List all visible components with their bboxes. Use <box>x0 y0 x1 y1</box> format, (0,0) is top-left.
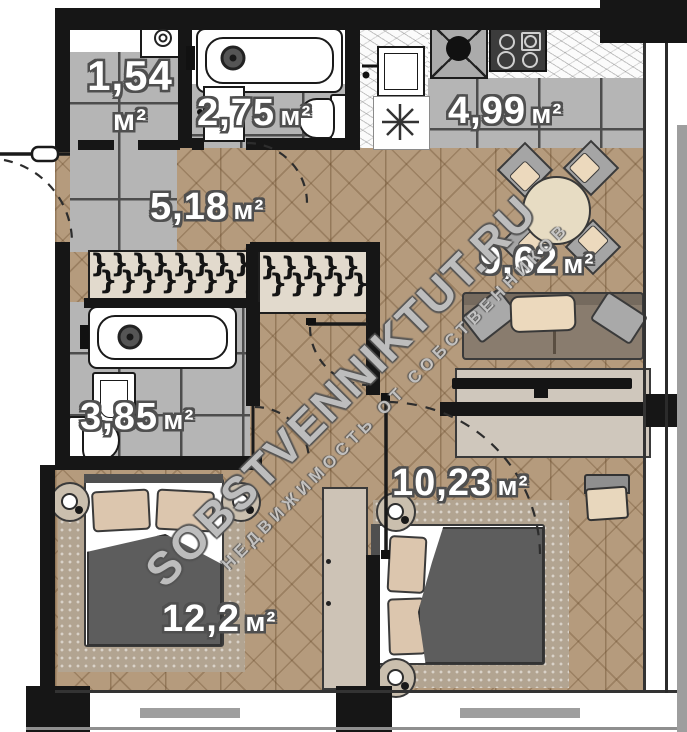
room-label-kitchen: 4,99 м² <box>448 90 562 133</box>
window-sill <box>460 708 580 718</box>
handle-icon <box>326 601 331 606</box>
room-label-bathroom-left: 3,85 м² <box>80 396 194 439</box>
railing-right <box>677 125 687 732</box>
blanket-right <box>418 527 544 664</box>
burner-icon <box>497 51 515 69</box>
nightstand-lamp <box>221 482 261 522</box>
appliance-space <box>373 96 430 150</box>
window-right-glass <box>665 43 668 693</box>
wardrobe-corridor: }}}}} }}}}} <box>258 250 368 314</box>
wall <box>84 298 250 308</box>
wall <box>366 242 380 395</box>
tv <box>452 378 632 389</box>
room-label-storage: 1,54 м² <box>78 52 182 138</box>
wall <box>366 555 380 690</box>
bathtub-left <box>88 306 237 369</box>
handle-icon <box>326 559 331 564</box>
balcony-edge <box>26 727 687 730</box>
window-bottom <box>55 690 687 693</box>
room-label-hallway: 5,18 м² <box>150 186 264 229</box>
floor-plan: }}}}}}}} }}}}}}}} }}}}} }}}}} <box>0 0 687 732</box>
burner-icon <box>522 52 538 68</box>
wall <box>138 140 180 150</box>
wall <box>192 138 204 150</box>
pillow <box>155 489 215 533</box>
pillow <box>91 489 151 533</box>
stove <box>489 26 547 72</box>
wall <box>55 8 600 30</box>
wall <box>246 302 260 406</box>
room-label-living-room: 9,62 м² <box>480 240 594 283</box>
wall <box>246 138 345 150</box>
door-panel <box>384 53 418 90</box>
hanger-icons: }}}}}}}} }}}}}}}} <box>90 252 248 293</box>
kitchen-sink-icon <box>446 36 471 61</box>
room-label-bathroom-top: 2,75 м² <box>197 92 311 135</box>
dining-table <box>522 176 591 245</box>
room-label-bedroom-left: 12,2 м² <box>162 598 276 641</box>
wall <box>40 465 55 690</box>
bathtub-top <box>196 28 343 93</box>
pillow <box>387 535 428 594</box>
sofa-pillow-beige <box>509 294 576 333</box>
burner-icon <box>499 34 515 50</box>
wall <box>78 140 114 150</box>
tv-stand <box>534 389 548 398</box>
wall <box>345 8 360 150</box>
room-label-bedroom-right: 10,23 м² <box>392 462 529 505</box>
burner-icon <box>524 35 537 48</box>
bed-left-headboard <box>84 474 223 483</box>
wall <box>600 0 687 43</box>
wardrobe-bedroom-left <box>322 487 368 690</box>
wall <box>55 8 70 152</box>
kitchen-door-leaf <box>377 46 425 97</box>
wall <box>250 242 380 252</box>
window-sill <box>140 708 240 718</box>
hanger-icons: }}}}} }}}}} <box>260 255 366 296</box>
wall <box>55 242 70 465</box>
chair-seat <box>585 486 629 522</box>
wall <box>55 456 262 470</box>
wall <box>440 402 645 416</box>
nightstand-lamp <box>50 482 90 522</box>
window-right-inner <box>643 43 646 693</box>
